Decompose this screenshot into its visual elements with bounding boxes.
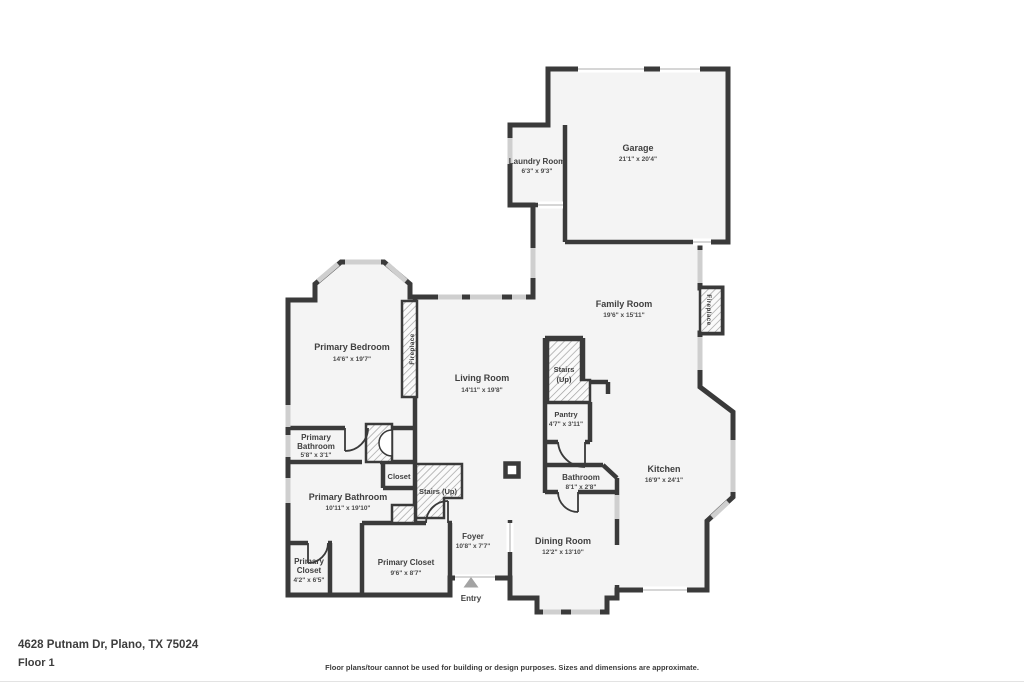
bedroom-fireplace-label: Fireplace (409, 333, 416, 364)
address-text: 4628 Putnam Dr, Plano, TX 75024 (18, 639, 198, 651)
floorplan-page: Garage 21'1" x 20'4" Laundry Room 6'3" x… (0, 0, 1024, 682)
kitchen-label: Kitchen (647, 464, 680, 474)
primary-closet-small-dims: 4'2" x 6'5" (294, 577, 325, 584)
kitchen-dims: 16'9" x 24'1" (645, 477, 683, 484)
bathroom-dims: 8'1" x 2'8" (566, 484, 597, 491)
primary-bathroom-small-label-1: Primary (301, 433, 331, 442)
family-room-label: Family Room (596, 299, 653, 309)
stairs-upper-label-2: (Up) (557, 375, 572, 384)
family-fireplace-label: Fireplace (705, 294, 712, 325)
chimney-block (366, 424, 392, 462)
primary-bathroom-dims: 10'11" x 19'10" (325, 505, 370, 512)
laundry-dims: 6'3" x 9'3" (522, 168, 553, 175)
foyer-dims: 10'8" x 7'7" (456, 543, 491, 550)
primary-closet-small-label-2: Closet (297, 566, 322, 575)
primary-closet-dims: 9'6" x 8'7" (391, 570, 422, 577)
laundry-label: Laundry Room (509, 157, 565, 166)
primary-bathroom-label: Primary Bathroom (309, 492, 388, 502)
entry-label: Entry (461, 594, 482, 603)
stairs-main-label: Stairs (Up) (419, 487, 457, 496)
pantry-label: Pantry (554, 410, 578, 419)
foyer-label: Foyer (462, 532, 484, 541)
primary-closet-small-label-1: Primary (294, 557, 324, 566)
garage-label: Garage (622, 143, 653, 153)
primary-bathroom-small-dims: 5'8" x 3'1" (301, 452, 332, 459)
stairs-upper-label-1: Stairs (554, 365, 575, 374)
family-room-dims: 19'6" x 15'11" (603, 312, 644, 319)
column (506, 464, 519, 477)
dining-room-label: Dining Room (535, 536, 591, 546)
disclaimer-text: Floor plans/tour cannot be used for buil… (0, 663, 1024, 672)
living-room-dims: 14'11" x 19'8" (461, 387, 502, 394)
primary-closet-label: Primary Closet (378, 558, 435, 567)
primary-bedroom-dims: 14'6" x 19'7" (333, 356, 371, 363)
primary-bedroom-label: Primary Bedroom (314, 342, 390, 352)
pantry-dims: 4'7" x 3'11" (549, 421, 583, 428)
dining-room-dims: 12'2" x 13'10" (542, 549, 584, 556)
bathroom-label: Bathroom (562, 473, 600, 482)
garage-dims: 21'1" x 20'4" (619, 156, 657, 163)
closet-label: Closet (388, 472, 411, 481)
floorplan: Garage 21'1" x 20'4" Laundry Room 6'3" x… (0, 0, 1024, 682)
primary-bathroom-small-label-2: Bathroom (297, 442, 335, 451)
living-room-label: Living Room (455, 373, 510, 383)
understairs-hatch (392, 505, 415, 523)
